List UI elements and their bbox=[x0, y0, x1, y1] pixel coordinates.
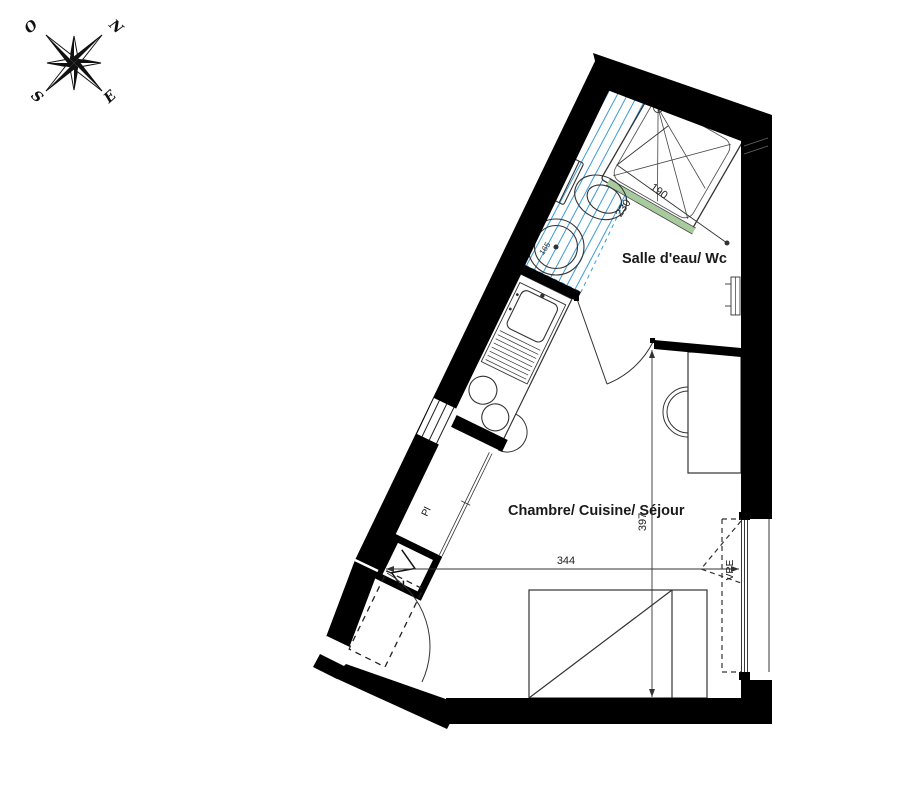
closet-label: Pl bbox=[420, 505, 434, 518]
window-end-cap bbox=[739, 672, 750, 680]
radiator bbox=[725, 277, 740, 315]
bathroom-label: Salle d'eau/ Wc bbox=[622, 251, 727, 267]
closet-front bbox=[436, 451, 495, 558]
floor-plan-drawing: O N S E bbox=[0, 0, 913, 800]
wall-diagonal-end bbox=[326, 560, 378, 648]
window-roller-shutter: VRE bbox=[701, 512, 772, 680]
compass-south-label: S bbox=[28, 88, 46, 107]
floor-plan-page: O N S E bbox=[0, 0, 913, 800]
compass-east-label: E bbox=[100, 87, 120, 107]
compass-north-label: N bbox=[105, 16, 127, 38]
chair bbox=[663, 387, 688, 437]
door-jamb bbox=[650, 338, 655, 343]
compass-rose: O N S E bbox=[21, 16, 126, 107]
dim-room-width: 344 bbox=[557, 555, 575, 567]
bathroom-door bbox=[577, 299, 653, 384]
door-jamb bbox=[574, 296, 579, 301]
desk bbox=[663, 352, 741, 473]
main-room-label: Chambre/ Cuisine/ Séjour bbox=[508, 503, 685, 519]
wall-bottom-left-angled bbox=[333, 664, 460, 729]
bed bbox=[529, 590, 707, 698]
wall-diagonal bbox=[355, 57, 620, 571]
compass-west-label: O bbox=[21, 16, 41, 37]
wall-right-upper bbox=[741, 141, 772, 519]
dim-room-depth: 397 bbox=[637, 513, 649, 531]
wall-bottom bbox=[446, 698, 772, 724]
